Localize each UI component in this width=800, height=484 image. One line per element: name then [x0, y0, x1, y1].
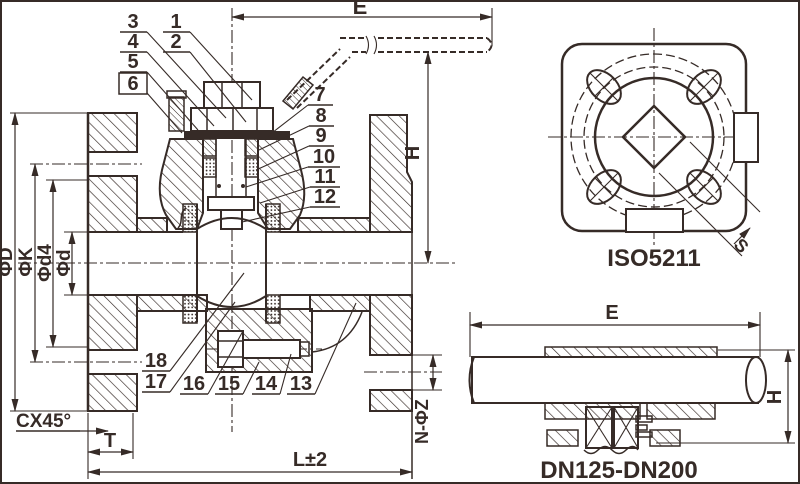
callout-4: 4: [127, 31, 139, 53]
callout-13: 13: [290, 373, 312, 395]
dim-phiD-label: ΦD: [0, 247, 17, 276]
seat-bottom-left: [183, 295, 197, 323]
callout-1: 1: [170, 11, 181, 33]
callout-2: 2: [170, 31, 181, 53]
gland-plate: [184, 131, 290, 139]
packing-upper-left: [203, 139, 216, 156]
dim-phiK-label: ΦK: [16, 247, 37, 277]
callout-5: 5: [127, 51, 138, 73]
tube-right-cap: [746, 357, 766, 403]
callout-17: 17: [145, 371, 167, 393]
stem-collar: [208, 197, 254, 210]
callout-18: 18: [145, 350, 167, 372]
callout-7: 7: [314, 84, 325, 106]
seat-bottom-right: [266, 295, 280, 323]
dn-view-title: DN125-DN200: [540, 457, 697, 484]
dim-phid4-label: Φd4: [35, 244, 56, 282]
handle-bracket-top: [545, 347, 717, 357]
callout-16: 16: [183, 373, 205, 395]
dn-dim-E-label: E: [605, 302, 618, 324]
side-tab: [734, 113, 758, 162]
dim-H-label: H: [402, 146, 424, 160]
dim-T-label: T: [104, 430, 116, 452]
callout-6: 6: [127, 73, 138, 95]
dn-dim-H-label: H: [764, 390, 786, 404]
handle-tube: [472, 357, 758, 403]
callout-10: 10: [313, 146, 335, 168]
seat-top-left: [183, 204, 197, 232]
gland-flange-nut: [191, 108, 273, 131]
seat-top-right: [266, 204, 280, 232]
callout-9: 9: [315, 125, 326, 147]
bottom-tab: [626, 209, 683, 232]
dim-E-label: E: [353, 0, 368, 19]
callout-15: 15: [218, 373, 240, 395]
callout-3: 3: [127, 11, 138, 33]
dim-L-label: L±2: [293, 449, 327, 471]
callout-8: 8: [315, 105, 326, 127]
packing-lower-right: [245, 158, 258, 177]
technical-drawing-page: 1 2 3 4 5 6 7 8 9 10 11 12 13: [0, 0, 800, 484]
dim-NphiZ-label: N-ΦZ: [412, 399, 432, 444]
packing-lower-left: [203, 158, 216, 177]
callout-14: 14: [255, 373, 278, 395]
ball-valve-drawing: 1 2 3 4 5 6 7 8 9 10 11 12 13: [0, 0, 800, 484]
callout-11: 11: [314, 166, 335, 188]
iso5211-title: ISO5211: [607, 245, 700, 272]
gland-bolt: [167, 91, 186, 131]
dim-chamfer-label: CX45°: [16, 411, 71, 432]
dim-phid-label: Φd: [54, 249, 75, 276]
packing-upper-right: [245, 139, 258, 156]
callout-12: 12: [314, 186, 336, 208]
